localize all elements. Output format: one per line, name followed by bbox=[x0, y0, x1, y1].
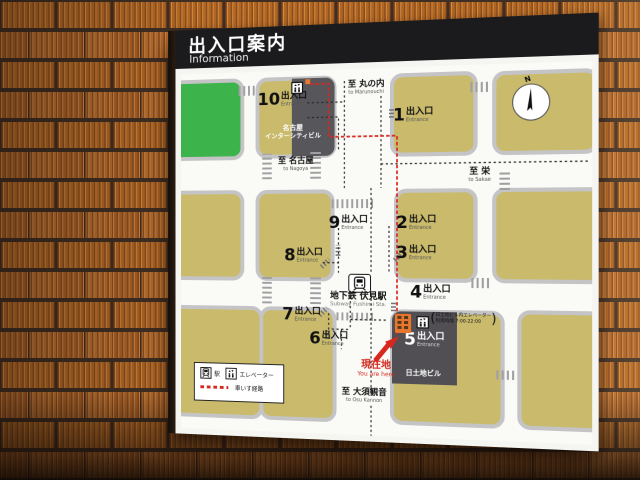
exit-3-label: 3 出入口Entrance bbox=[396, 246, 436, 261]
legend-wheelchair-label: 車いす経路 bbox=[235, 383, 263, 393]
exit-5-label: 5 出入口Entrance bbox=[404, 333, 444, 349]
train-icon bbox=[352, 276, 367, 291]
wheelchair-route-sample bbox=[200, 385, 228, 389]
legend-wheelchair-row: 車いす経路 bbox=[200, 382, 279, 393]
exit-2-label: 2 出入口Entrance bbox=[396, 216, 436, 231]
elevator-icon bbox=[226, 368, 237, 380]
station-name: 地下鉄 伏見駅 Subway Fushimi Sta. bbox=[321, 291, 396, 308]
exit-9-label: 9 出入口Entrance bbox=[329, 216, 368, 231]
direction-sakae: 至 栄 to Sakae bbox=[459, 167, 501, 183]
map-legend: 駅 エレベーター 車いす経路 bbox=[194, 362, 284, 404]
direction-osu-kannon: 至 大須観音 to Osu Kannon bbox=[335, 388, 394, 405]
exit-8-label: 8 出入口Entrance bbox=[284, 249, 323, 264]
elevator-icon bbox=[416, 314, 429, 327]
direction-nagoya: 至 名古屋 to Nagoya bbox=[273, 157, 319, 172]
train-icon bbox=[200, 367, 211, 379]
elevator-hours-note: ( 日土地ビル内エレベーター 利用時間 7:00-22:00 ) bbox=[430, 312, 502, 326]
compass-needle-icon bbox=[513, 84, 546, 117]
compass bbox=[512, 83, 550, 121]
intercity-building-name: 名古屋 インターシティビル bbox=[261, 123, 324, 140]
exit-information-sign: 出入口案内 Information bbox=[176, 13, 599, 452]
sign-title-en: Information bbox=[189, 51, 248, 66]
direction-marunouchi: 至 丸の内 to Marunouchi bbox=[340, 80, 392, 96]
exit-map: 10 出入口Entrance 1 出入口Entrance 9 出入口Entran… bbox=[181, 61, 592, 445]
exit-7-label: 7 出入口Entrance bbox=[282, 308, 320, 323]
exit-6-label: 6 出入口Entrance bbox=[309, 332, 348, 348]
exit-10-label: 10 出入口Entrance bbox=[258, 92, 308, 108]
elevator-icon bbox=[291, 79, 304, 92]
exit-4-label: 4 出入口Entrance bbox=[410, 285, 451, 301]
you-are-here-label: 現在地 You are here bbox=[348, 360, 404, 379]
legend-elevator-label: エレベーター bbox=[240, 370, 274, 380]
current-building-icon bbox=[393, 313, 413, 333]
legend-station-row: 駅 エレベーター bbox=[200, 367, 279, 381]
exit-1-label: 1 出入口Entrance bbox=[393, 108, 433, 124]
legend-station-label: 駅 bbox=[214, 369, 220, 378]
station-symbol-box bbox=[348, 274, 371, 293]
route-start-marker bbox=[305, 79, 310, 84]
